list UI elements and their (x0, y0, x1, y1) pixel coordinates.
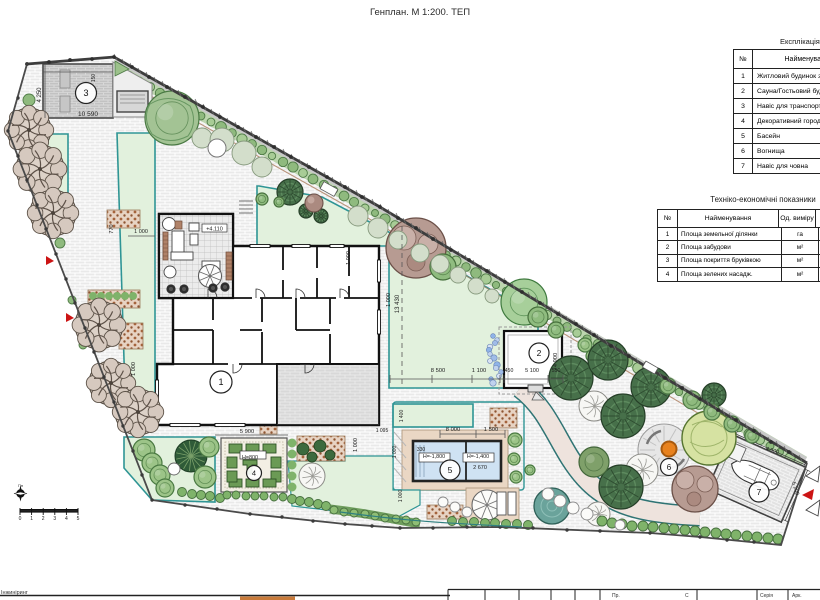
svg-text:5: 5 (77, 516, 80, 522)
svg-text:2: 2 (537, 348, 542, 358)
svg-text:Пр.: Пр. (612, 593, 620, 599)
svg-text:Н=-1,800: Н=-1,800 (423, 454, 445, 460)
svg-text:4: 4 (252, 469, 256, 478)
svg-text:3: 3 (83, 88, 88, 98)
svg-text:7: 7 (757, 487, 762, 497)
svg-text:10 590: 10 590 (78, 111, 98, 118)
svg-text:4 250: 4 250 (37, 87, 43, 103)
svg-text:2 670: 2 670 (473, 465, 487, 471)
svg-text:2: 2 (42, 516, 45, 522)
svg-text:3: 3 (53, 516, 56, 522)
svg-text:Арк.: Арк. (792, 593, 802, 599)
svg-text:4: 4 (65, 516, 68, 522)
svg-text:1: 1 (30, 516, 33, 522)
svg-text:1 100: 1 100 (472, 368, 487, 374)
svg-text:+4.110: +4.110 (206, 227, 223, 233)
svg-text:770: 770 (109, 224, 115, 233)
svg-text:1 000: 1 000 (392, 446, 398, 459)
svg-text:1 095: 1 095 (376, 428, 389, 434)
svg-text:1 000: 1 000 (346, 251, 352, 265)
svg-text:С: С (685, 593, 689, 599)
svg-text:1 000: 1 000 (386, 293, 392, 307)
svg-text:Н=-1,400: Н=-1,400 (467, 454, 489, 460)
svg-text:330: 330 (417, 447, 426, 453)
svg-text:8 500: 8 500 (431, 368, 446, 374)
svg-text:5 900: 5 900 (240, 429, 255, 435)
svg-text:1 000: 1 000 (134, 229, 148, 235)
svg-text:1 000: 1 000 (398, 490, 404, 503)
svg-text:1 000: 1 000 (131, 362, 137, 376)
svg-text:13 430: 13 430 (395, 294, 401, 313)
svg-text:1 000: 1 000 (353, 438, 359, 452)
svg-text:150: 150 (91, 74, 97, 83)
svg-text:Серія: Серія (760, 593, 773, 599)
svg-text:Н=800: Н=800 (242, 455, 258, 461)
svg-text:0: 0 (19, 516, 22, 522)
svg-text:Пн: Пн (18, 483, 23, 488)
svg-text:450: 450 (505, 368, 514, 374)
svg-text:5: 5 (448, 465, 453, 475)
svg-text:8 000: 8 000 (446, 427, 461, 433)
svg-text:1: 1 (218, 377, 223, 387)
svg-text:4 900: 4 900 (553, 353, 559, 368)
svg-text:1 400: 1 400 (399, 410, 405, 423)
svg-text:6: 6 (667, 463, 672, 472)
svg-text:550: 550 (552, 368, 561, 374)
svg-text:5 100: 5 100 (525, 368, 539, 374)
svg-text:1 500: 1 500 (484, 427, 499, 433)
